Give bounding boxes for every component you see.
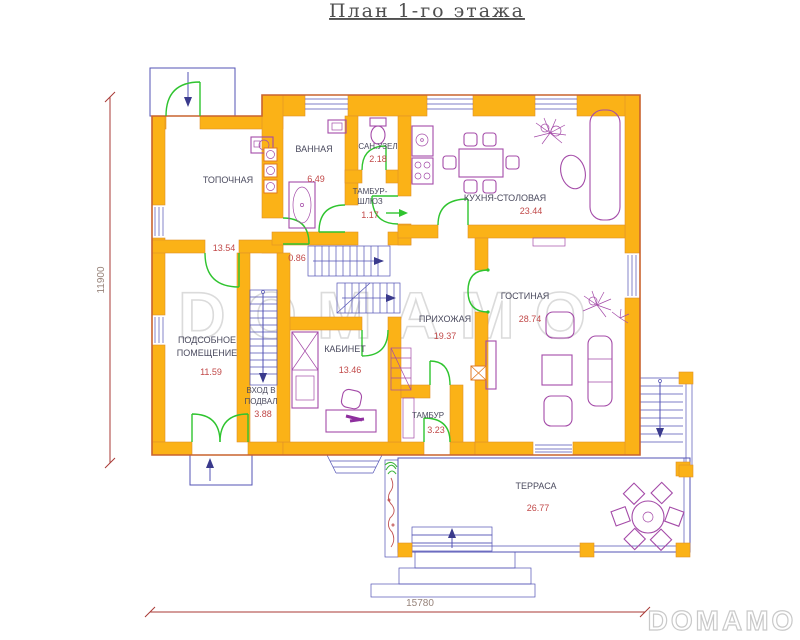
entry-porch-bottom-left [190,455,252,485]
room-area-airlock: 1.17 [361,210,379,220]
room-area-hallway: 19.37 [434,331,457,341]
toilet [370,118,386,144]
room-label-study: КАБИНЕТ [324,344,366,354]
dimension-horizontal-value: 15780 [406,598,434,609]
terrace-flower-bed [385,460,398,557]
dining-table-set [443,133,519,193]
room-label-living: ГОСТИНАЯ [501,291,550,301]
dimension-vertical: 11900 [96,92,115,468]
room-label-airlock-2: ШЛЮЗ [357,197,383,206]
room-label-vestibule: ТАМБУР [412,411,444,420]
room-label-terrace: ТЕРРАСА [515,481,556,491]
room-label-wc: САН.УЗЕЛ [358,142,397,151]
room-area-vestibule: 3.23 [427,425,445,435]
ground-steps [371,552,535,597]
page-title: План 1-го этажа [329,0,525,22]
room-label-bathroom: ВАННАЯ [295,144,332,154]
room-area-bathroom: 6.49 [307,174,325,184]
room-label-airlock-1: ТАМБУР- [353,187,388,196]
kitchen-counter [412,126,433,184]
kitchen-ottoman [557,152,589,191]
living-room-flue [471,366,486,380]
kitchen-couch [590,110,620,220]
terrace-posts [398,372,693,557]
room-label-basement-2: ПОДВАЛ [244,397,277,406]
terrace-table-set [611,482,684,550]
dimension-horizontal: 15780 [145,598,650,617]
room-area-living: 28.74 [519,314,542,324]
room-label-utility-2: ПОМЕЩЕНИЕ [177,348,237,358]
dimension-vertical-value: 11900 [96,266,107,294]
room-area-kitchen: 23.44 [520,206,543,216]
vestibule-outside-steps [327,455,382,473]
room-area-study: 13.46 [339,365,362,375]
room-area-boiler: 13.54 [213,243,236,253]
floor-plan-page: План 1-го этажа DOMAMO [0,0,800,640]
room-label-boiler: ТОПОЧНАЯ [203,175,253,185]
room-area-utility: 11.59 [200,367,222,377]
doors-layer [166,82,490,442]
room-label-utility-1: ПОДСОБНОЕ [178,335,236,345]
room-label-basement-1: ВХОД В [246,386,275,395]
room-area-understairs: 0.86 [288,253,306,263]
brand-logo: DOMAMO [648,605,797,636]
floor-plan-svg: План 1-го этажа DOMAMO [0,0,800,640]
room-area-wc: 2.18 [369,154,387,164]
terrace-steps [412,527,492,551]
room-area-terrace: 26.77 [527,503,550,513]
entry-porch-top-left [150,68,235,116]
room-label-hallway: ПРИХОЖАЯ [419,314,471,324]
room-label-kitchen: КУХНЯ-СТОЛОВАЯ [464,193,546,203]
room-area-basement: 3.88 [254,409,272,419]
kitchen-plant [534,118,566,144]
